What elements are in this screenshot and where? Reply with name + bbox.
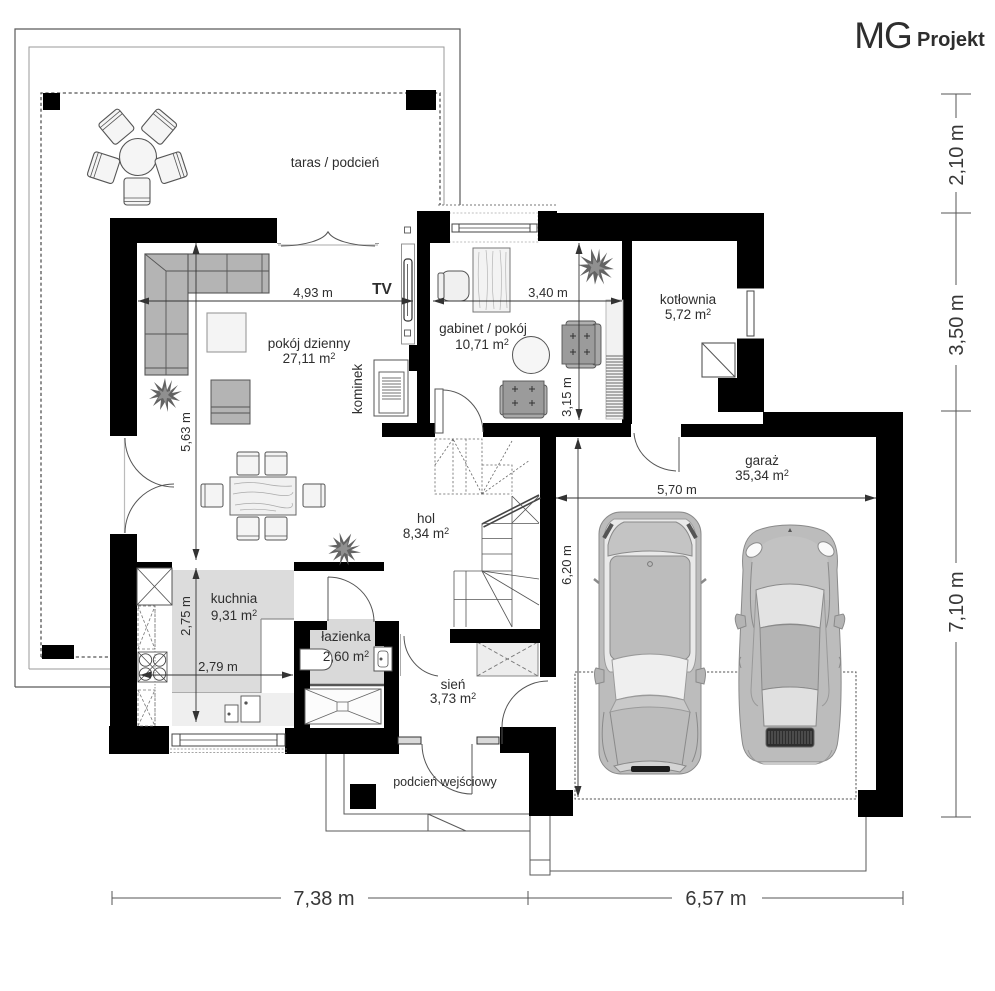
svg-text:garaż: garaż <box>745 453 779 468</box>
svg-text:35,34 m2: 35,34 m2 <box>735 468 789 483</box>
svg-text:2,75 m: 2,75 m <box>178 596 193 636</box>
svg-text:sień: sień <box>441 677 466 692</box>
svg-text:MG: MG <box>854 15 912 56</box>
svg-text:5,63 m: 5,63 m <box>178 412 193 452</box>
svg-text:3,50 m: 3,50 m <box>946 294 968 355</box>
svg-text:hol: hol <box>417 511 435 526</box>
svg-text:7,10 m: 7,10 m <box>946 571 968 632</box>
svg-text:5,70 m: 5,70 m <box>657 482 697 497</box>
svg-text:3,73 m2: 3,73 m2 <box>430 691 476 706</box>
svg-text:kominek: kominek <box>350 364 365 415</box>
svg-text:łazienka: łazienka <box>321 629 371 644</box>
svg-text:2,60 m2: 2,60 m2 <box>323 649 369 664</box>
svg-text:9,31 m2: 9,31 m2 <box>211 608 257 623</box>
svg-text:2,10 m: 2,10 m <box>946 124 968 185</box>
svg-text:3,40 m: 3,40 m <box>528 285 568 300</box>
svg-text:10,71 m2: 10,71 m2 <box>455 337 509 352</box>
svg-text:7,38 m: 7,38 m <box>293 888 354 910</box>
svg-text:8,34 m2: 8,34 m2 <box>403 526 449 541</box>
svg-text:6,20 m: 6,20 m <box>559 545 574 585</box>
svg-text:4,93 m: 4,93 m <box>293 285 333 300</box>
svg-text:gabinet / pokój: gabinet / pokój <box>439 321 527 336</box>
svg-text:podcień wejściowy: podcień wejściowy <box>393 775 497 789</box>
svg-text:taras / podcień: taras / podcień <box>291 155 380 170</box>
svg-text:kotłownia: kotłownia <box>660 292 717 307</box>
svg-text:pokój dzienny: pokój dzienny <box>268 336 351 351</box>
svg-text:27,11 m2: 27,11 m2 <box>283 351 336 366</box>
svg-text:6,57 m: 6,57 m <box>685 888 746 910</box>
svg-text:3,15 m: 3,15 m <box>559 377 574 417</box>
svg-text:Projekt: Projekt <box>917 29 985 51</box>
svg-text:2,79 m: 2,79 m <box>198 659 238 674</box>
svg-text:5,72 m2: 5,72 m2 <box>665 307 711 322</box>
svg-text:TV: TV <box>372 281 392 298</box>
svg-text:kuchnia: kuchnia <box>211 591 258 606</box>
